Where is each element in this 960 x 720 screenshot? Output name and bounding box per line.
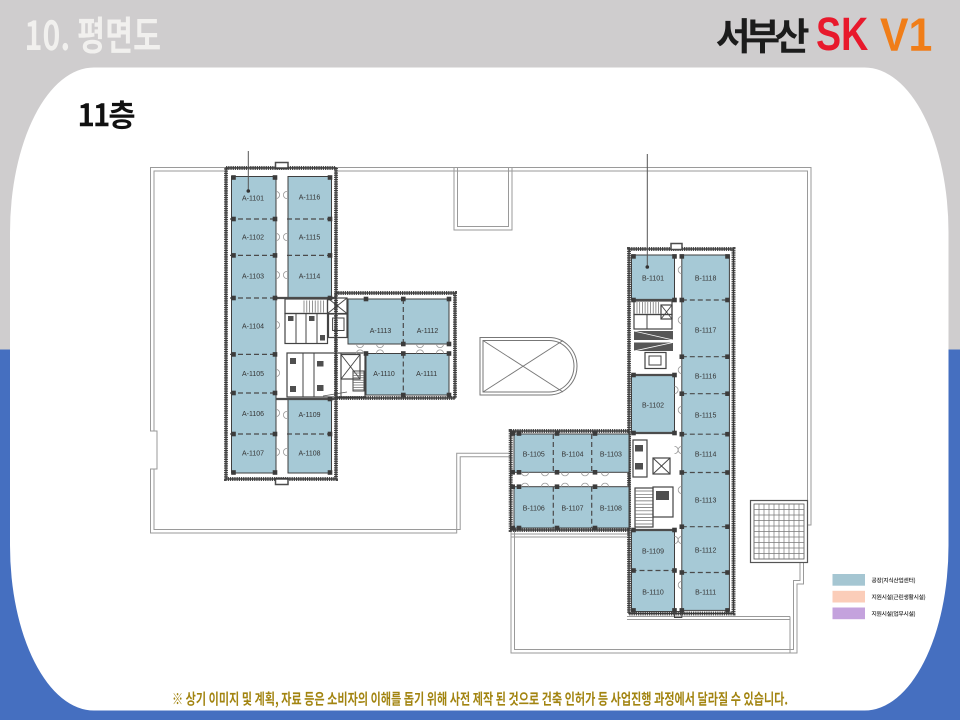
svg-text:B-1114: B-1114: [695, 451, 717, 458]
svg-text:B-1113: B-1113: [695, 497, 717, 504]
svg-text:B-1102: B-1102: [642, 402, 664, 409]
svg-text:A-1113: A-1113: [370, 328, 392, 335]
svg-text:B-1110: B-1110: [642, 589, 664, 596]
svg-text:B-1104: B-1104: [561, 451, 583, 458]
svg-text:A-1105: A-1105: [242, 371, 264, 378]
svg-text:B-1107: B-1107: [561, 505, 583, 512]
svg-text:B-1115: B-1115: [695, 412, 717, 419]
svg-text:A-1106: A-1106: [242, 411, 264, 418]
svg-text:B-1118: B-1118: [695, 275, 717, 282]
svg-text:A-1115: A-1115: [299, 234, 321, 241]
svg-text:A-1112: A-1112: [417, 328, 439, 335]
svg-text:A-1111: A-1111: [416, 371, 437, 378]
svg-text:A-1114: A-1114: [299, 273, 321, 280]
svg-text:B-1101: B-1101: [642, 275, 664, 282]
svg-text:A-1104: A-1104: [242, 323, 264, 330]
svg-text:A-1110: A-1110: [373, 371, 395, 378]
svg-text:A-1107: A-1107: [242, 450, 264, 457]
svg-text:B-1108: B-1108: [600, 505, 622, 512]
svg-text:B-1106: B-1106: [523, 505, 545, 512]
svg-text:A-1101: A-1101: [242, 195, 264, 202]
svg-text:B-1112: B-1112: [695, 547, 717, 554]
svg-text:A-1102: A-1102: [242, 234, 264, 241]
svg-text:A-1116: A-1116: [299, 194, 321, 201]
svg-text:B-1105: B-1105: [523, 451, 545, 458]
svg-text:A-1109: A-1109: [298, 412, 320, 419]
svg-text:B-1111: B-1111: [695, 589, 716, 596]
svg-text:A-1103: A-1103: [242, 273, 264, 280]
svg-text:B-1103: B-1103: [600, 451, 622, 458]
svg-text:A-1108: A-1108: [298, 450, 320, 457]
svg-text:B-1117: B-1117: [695, 327, 717, 334]
svg-text:B-1116: B-1116: [695, 373, 717, 380]
svg-text:B-1109: B-1109: [642, 548, 664, 555]
